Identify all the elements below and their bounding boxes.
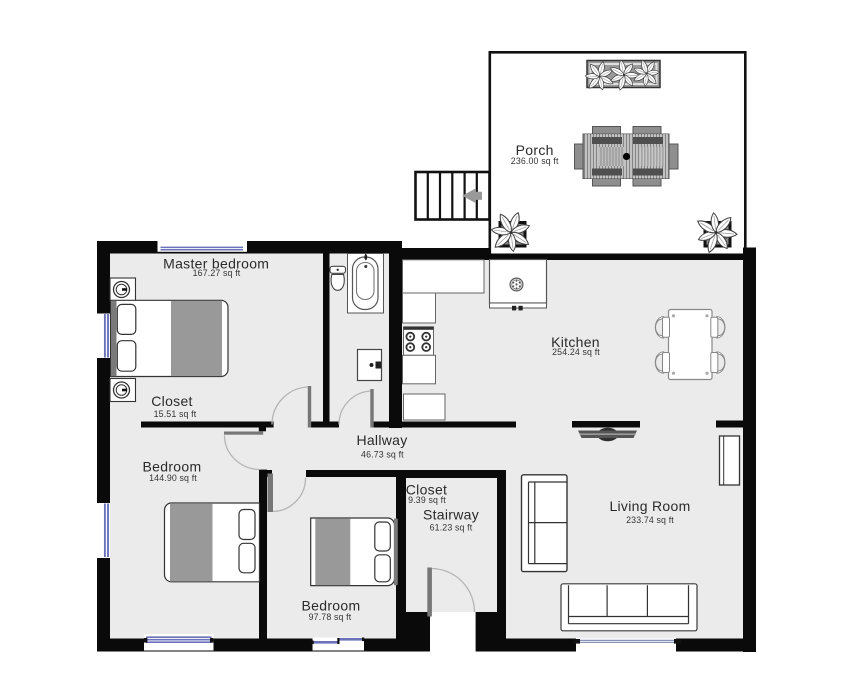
svg-text:Stairway: Stairway [423, 507, 479, 523]
svg-text:97.78 sq ft: 97.78 sq ft [309, 612, 352, 622]
svg-text:236.00 sq ft: 236.00 sq ft [511, 156, 559, 166]
svg-text:61.23 sq ft: 61.23 sq ft [430, 523, 473, 533]
svg-text:233.74 sq ft: 233.74 sq ft [626, 515, 674, 525]
svg-text:15.51 sq ft: 15.51 sq ft [154, 409, 197, 419]
svg-text:46.73 sq ft: 46.73 sq ft [361, 450, 404, 460]
svg-text:167.27 sq ft: 167.27 sq ft [193, 268, 241, 278]
svg-text:Living Room: Living Room [609, 498, 690, 514]
svg-text:144.90 sq ft: 144.90 sq ft [149, 473, 197, 483]
svg-text:Closet: Closet [151, 393, 192, 409]
svg-text:9.39 sq ft: 9.39 sq ft [408, 495, 446, 505]
svg-text:254.24 sq ft: 254.24 sq ft [552, 347, 600, 357]
svg-text:Hallway: Hallway [356, 432, 407, 448]
